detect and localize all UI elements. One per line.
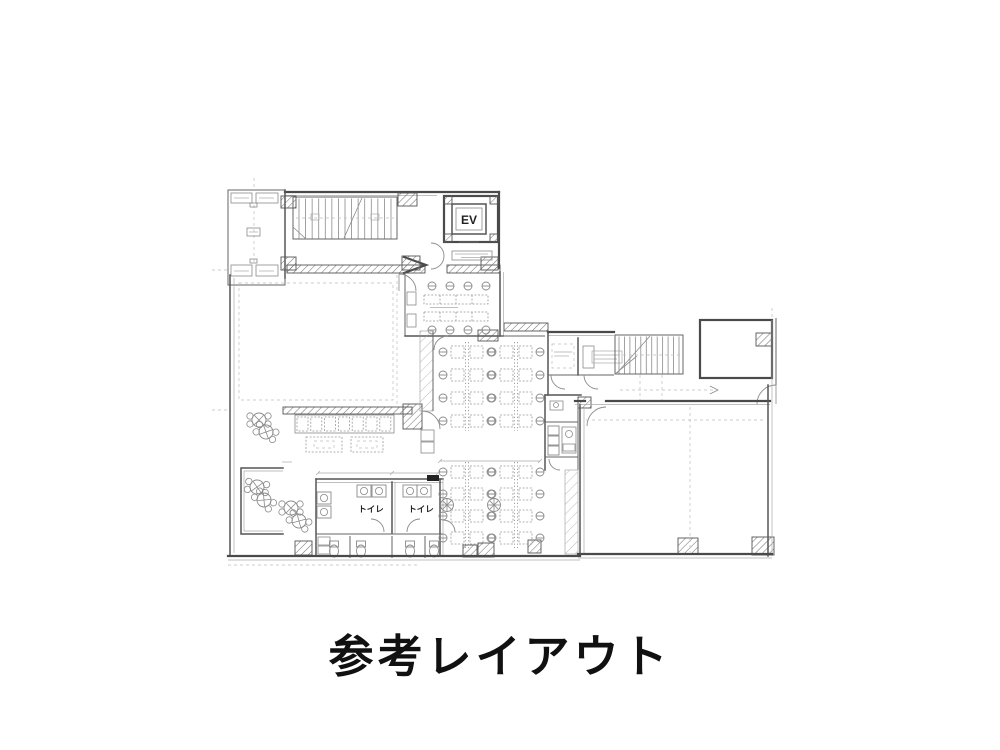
toilet-block: トイレ トイレ	[316, 471, 455, 558]
elevator-label: EV	[461, 213, 477, 227]
page: EV	[0, 0, 1000, 750]
kitchen-utility	[545, 395, 581, 554]
caption: 参考レイアウト	[0, 620, 1000, 685]
toilet-label-right: トイレ	[408, 504, 434, 514]
left-room	[230, 275, 433, 556]
bottom-walls	[228, 554, 772, 565]
toilet-label-left: トイレ	[358, 504, 384, 514]
right-wing	[548, 318, 776, 404]
balcony-strip	[228, 190, 285, 285]
caption-text: 参考レイアウト	[328, 631, 671, 682]
open-office	[421, 336, 545, 548]
machine-room	[700, 318, 776, 385]
staircase-upper	[293, 197, 397, 239]
meeting-area	[399, 272, 504, 336]
staircase-right	[615, 335, 718, 400]
